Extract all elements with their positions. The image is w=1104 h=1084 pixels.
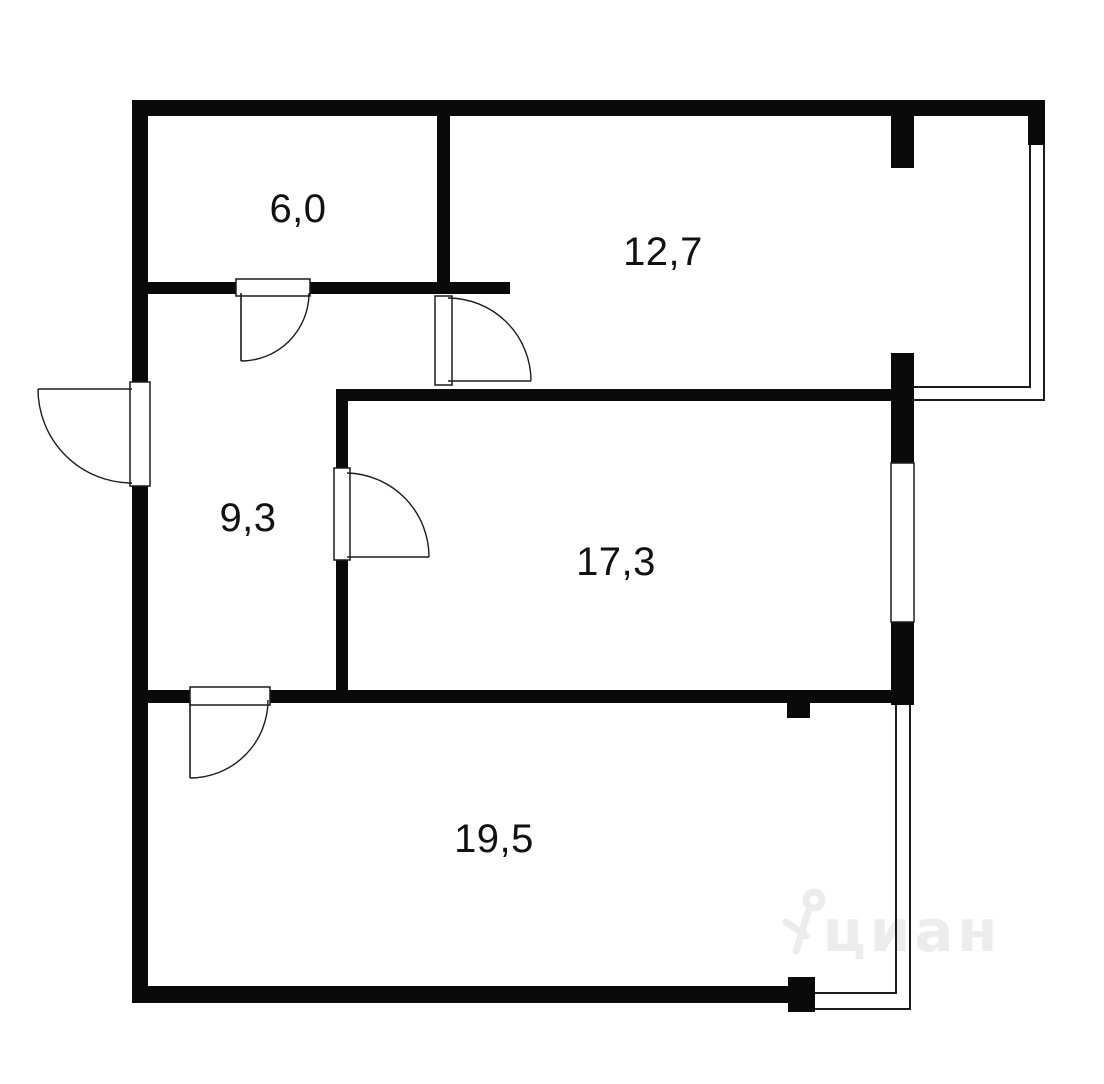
wall-outer-top [132, 100, 1045, 116]
floor-plan: циан [0, 0, 1104, 1084]
wall-mid-left [148, 690, 190, 703]
wall-mid-right [270, 690, 914, 703]
door-12-sill [435, 296, 452, 385]
wall-outer-bottom [132, 986, 788, 1003]
room-label-12-7: 12,7 [623, 230, 703, 274]
wall-divider-6-12 [437, 116, 450, 283]
wall-outer-left-lower [132, 486, 148, 1003]
door-19-sill [190, 687, 270, 705]
entrance-door-sill [130, 382, 150, 486]
wall-right-lower [891, 622, 914, 705]
wall-outer-left-upper [132, 100, 148, 382]
room-label-17-3: 17,3 [576, 540, 656, 584]
door-6-sill [236, 279, 310, 296]
floor-plan-canvas: циан [0, 0, 1104, 1084]
door-17-sill [334, 468, 350, 560]
wall-17-top [337, 389, 914, 401]
wall-6-bottom-left [148, 282, 236, 294]
room-label-6-0: 6,0 [269, 187, 326, 231]
wall-pier-below-mid [787, 703, 810, 718]
wall-pier-bottom-right [788, 977, 815, 1012]
watermark-text: циан [823, 897, 1002, 965]
wall-6-bottom-right [310, 282, 510, 294]
wall-17-left-upper [336, 389, 348, 468]
window-room-17-3 [891, 463, 914, 622]
wall-right-stub-top [891, 116, 914, 168]
room-label-9-3: 9,3 [219, 496, 276, 540]
room-label-19-5: 19,5 [454, 817, 534, 861]
wall-right-upper [891, 353, 914, 463]
wall-17-left-lower [336, 560, 348, 690]
wall-bay-stub-right [1028, 116, 1045, 145]
